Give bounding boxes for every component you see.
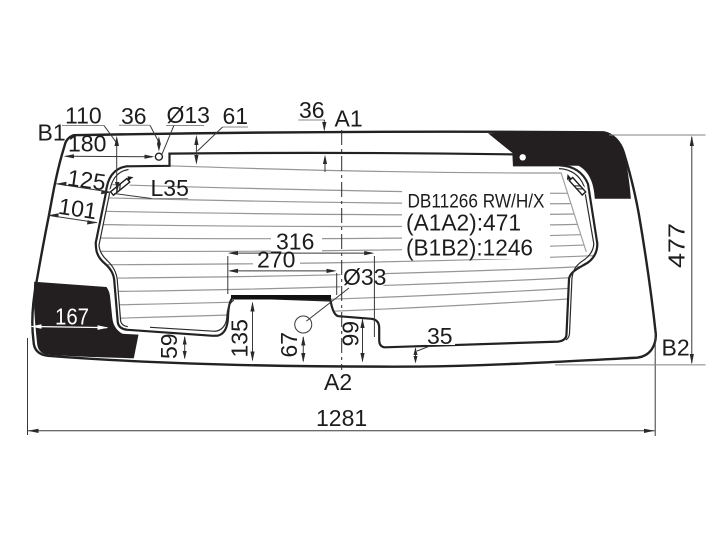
svg-text:36: 36 <box>121 103 147 129</box>
svg-text:Ø13: Ø13 <box>167 102 210 128</box>
svg-text:125: 125 <box>66 164 108 195</box>
svg-text:1281: 1281 <box>316 405 367 431</box>
svg-text:A2: A2 <box>324 369 352 395</box>
svg-text:61: 61 <box>223 103 249 129</box>
svg-text:67: 67 <box>276 332 302 358</box>
svg-text:(B1B2):1246: (B1B2):1246 <box>406 235 533 261</box>
svg-text:B1: B1 <box>38 120 66 146</box>
svg-text:Ø33: Ø33 <box>343 264 386 290</box>
svg-text:(A1A2):471: (A1A2):471 <box>406 210 521 236</box>
svg-text:59: 59 <box>156 333 182 359</box>
svg-text:135: 135 <box>227 319 253 357</box>
svg-text:477: 477 <box>664 223 690 268</box>
svg-text:110: 110 <box>65 103 102 129</box>
svg-text:A1: A1 <box>335 106 363 132</box>
svg-text:35: 35 <box>427 323 453 349</box>
svg-text:B2: B2 <box>662 335 690 361</box>
svg-text:99: 99 <box>338 321 364 347</box>
svg-text:36: 36 <box>299 97 325 123</box>
svg-text:180: 180 <box>68 131 106 157</box>
svg-text:167: 167 <box>55 304 89 330</box>
svg-text:270: 270 <box>257 247 295 273</box>
svg-text:L35: L35 <box>151 175 189 201</box>
